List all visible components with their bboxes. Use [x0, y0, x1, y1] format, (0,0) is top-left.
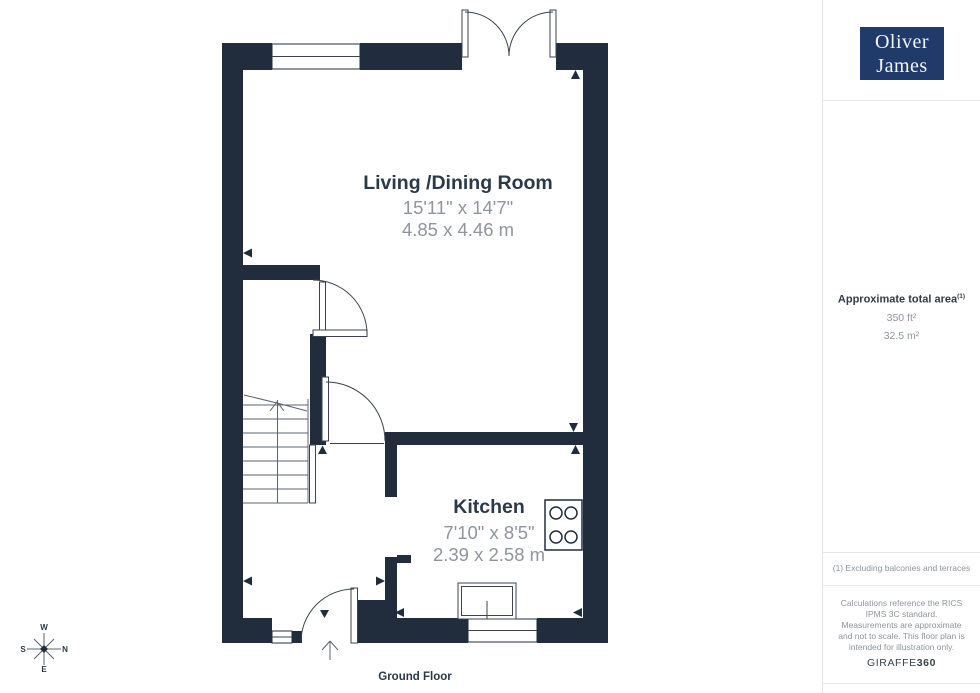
stair-stringer — [310, 445, 316, 503]
marker-triangle — [571, 70, 580, 79]
door-lower-arc — [326, 382, 385, 441]
logo-line1: Oliver — [860, 30, 944, 54]
french-door-right-leaf — [550, 10, 556, 57]
info-sidebar: Oliver James Approximate total area(1) 3… — [822, 0, 980, 693]
footnote-excluding: (1) Excluding balconies and terraces — [823, 563, 980, 573]
marker-triangle — [571, 445, 580, 454]
wall-right — [583, 43, 608, 643]
wall-kitchen-stub — [397, 555, 411, 563]
logo-line2: James — [860, 54, 944, 78]
compass-s: S — [20, 645, 26, 654]
living-room-dims-metric: 4.85 x 4.46 m — [402, 219, 514, 240]
door-hall-living-leaf — [313, 330, 367, 337]
wall-kitchen-left-lower — [385, 557, 397, 618]
door-hall-living — [313, 280, 367, 337]
marker-triangle — [243, 249, 252, 258]
floorplan-page: W N E S Living /Dining Room 15'11" x 14'… — [0, 0, 980, 693]
wall-divider-living-kitchen — [385, 432, 583, 445]
wall-top-mid — [360, 43, 462, 70]
french-doors — [462, 10, 556, 57]
marker-triangle — [243, 577, 252, 586]
wall-hall-top — [243, 265, 320, 280]
kitchen-name: Kitchen — [453, 496, 525, 518]
door-hall-living-jamb — [320, 282, 326, 332]
door-living-hall-lower — [322, 377, 385, 444]
stove-burner — [550, 531, 562, 543]
marker-triangle — [318, 446, 327, 455]
stair-treads — [243, 399, 308, 503]
wall-bottom-stub — [292, 631, 302, 643]
wall-left — [222, 43, 243, 643]
marker-triangle — [376, 577, 385, 586]
total-area-block: Approximate total area(1) 350 ft² 32.5 m… — [823, 293, 980, 342]
wall-bottom-kitchen-left — [397, 618, 468, 643]
living-room-dims-imperial: 15'11" x 14'7" — [403, 197, 513, 218]
kitchen-dims-imperial: 7'10" x 8'5" — [443, 522, 534, 543]
stove-burner — [565, 507, 577, 519]
stove-burner — [565, 531, 577, 543]
french-door-left-leaf — [462, 10, 468, 57]
compass-w: W — [40, 623, 48, 632]
stair-walkline — [244, 395, 307, 411]
brand-text: GIRAFFE — [867, 657, 917, 669]
marker-triangle — [569, 423, 578, 432]
interior-walls — [243, 265, 583, 618]
compass-n: N — [62, 645, 68, 654]
sidebar-divider — [823, 100, 980, 101]
front-door-arc — [301, 589, 354, 642]
brand-text-bold: 360 — [917, 657, 936, 669]
front-door — [301, 588, 358, 660]
stove-icon — [545, 500, 582, 550]
wall-bottom-kitchen-right — [537, 618, 608, 643]
area-value-ft: 350 ft² — [823, 312, 980, 324]
agency-logo: Oliver James — [860, 27, 944, 80]
kitchen-dims-metric: 2.39 x 2.58 m — [433, 544, 545, 565]
marker-triangle — [573, 608, 582, 617]
staircase — [243, 395, 316, 503]
sidebar-divider — [823, 683, 980, 684]
entry-arrow — [322, 641, 338, 660]
floor-label: Ground Floor — [378, 671, 452, 683]
stove-burner — [550, 507, 562, 519]
french-door-right-arc — [509, 12, 553, 56]
compass-e: E — [41, 665, 47, 674]
giraffe360-brand: GIRAFFE360 — [823, 657, 980, 669]
sidebar-divider — [823, 552, 980, 553]
wall-kitchen-left-upper — [385, 445, 397, 497]
front-door-leaf — [351, 588, 358, 643]
french-door-left-arc — [465, 12, 509, 56]
exterior-walls — [222, 43, 608, 643]
disclaimer-text: Calculations reference the RICS IPMS 3C … — [837, 598, 966, 653]
area-heading-text: Approximate total area — [838, 294, 957, 306]
compass: W N E S — [20, 623, 68, 674]
marker-triangle — [320, 610, 329, 618]
living-room-name: Living /Dining Room — [363, 172, 553, 194]
wall-bottom-left — [222, 618, 272, 643]
area-value-m: 32.5 m² — [823, 330, 980, 342]
area-heading: Approximate total area(1) — [823, 293, 980, 306]
area-heading-footref: (1) — [957, 293, 965, 300]
sidebar-divider — [823, 585, 980, 586]
floorplan-drawing: W N E S Living /Dining Room 15'11" x 14'… — [0, 0, 822, 693]
door-lower-leaf — [322, 377, 329, 441]
